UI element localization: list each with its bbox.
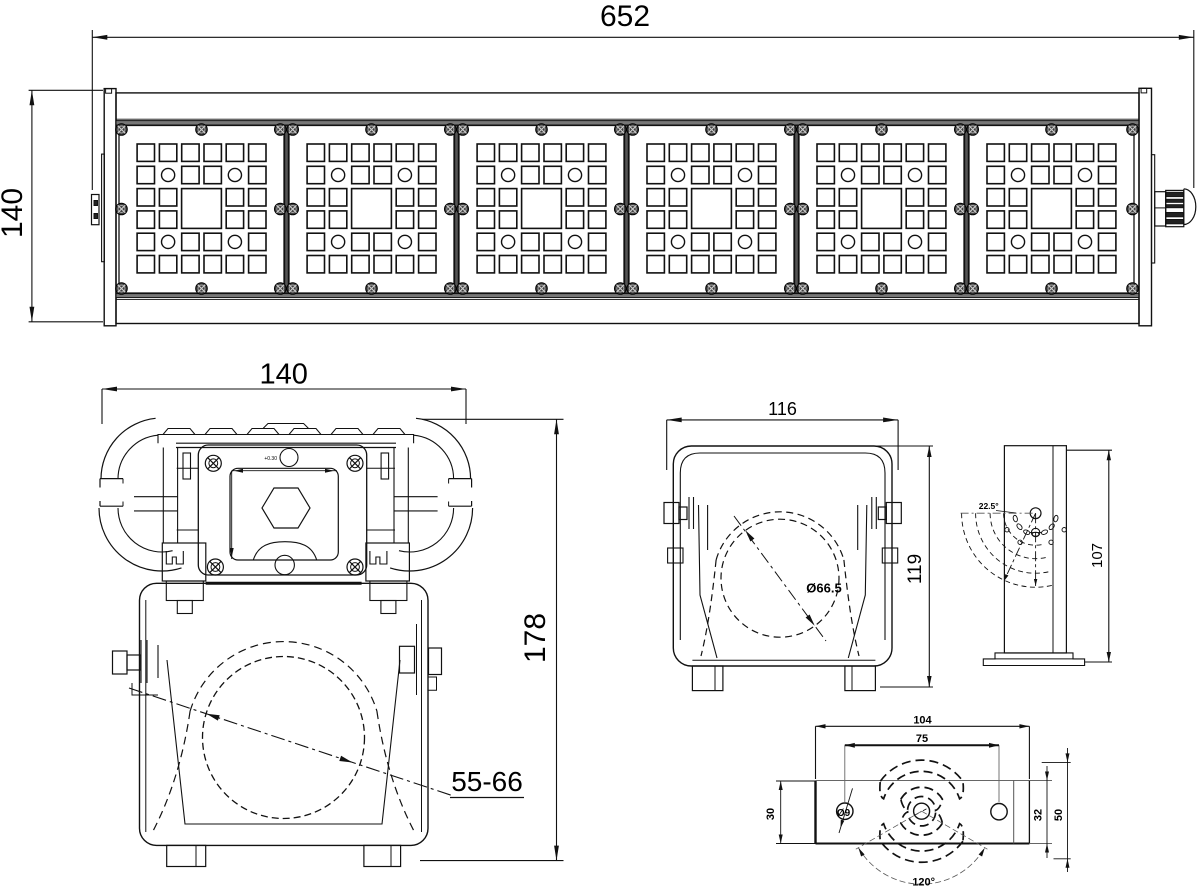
svg-text:120°: 120°: [912, 877, 935, 889]
svg-text:32: 32: [1033, 809, 1045, 821]
svg-text:Ø9: Ø9: [837, 808, 851, 819]
svg-text:50: 50: [1053, 809, 1065, 821]
svg-text:+0.30: +0.30: [264, 456, 277, 462]
svg-text:Ø66.5: Ø66.5: [806, 581, 841, 596]
svg-text:30: 30: [765, 808, 777, 820]
svg-text:107: 107: [1089, 543, 1106, 568]
svg-text:55-66: 55-66: [451, 766, 523, 797]
svg-text:22.5°: 22.5°: [979, 501, 1000, 511]
svg-text:119: 119: [905, 554, 926, 584]
svg-text:116: 116: [768, 399, 797, 419]
svg-text:652: 652: [600, 0, 650, 33]
svg-text:140: 140: [0, 188, 29, 238]
svg-text:178: 178: [519, 613, 552, 663]
svg-text:75: 75: [916, 733, 928, 745]
svg-text:104: 104: [913, 715, 932, 727]
svg-text:140: 140: [260, 359, 308, 391]
